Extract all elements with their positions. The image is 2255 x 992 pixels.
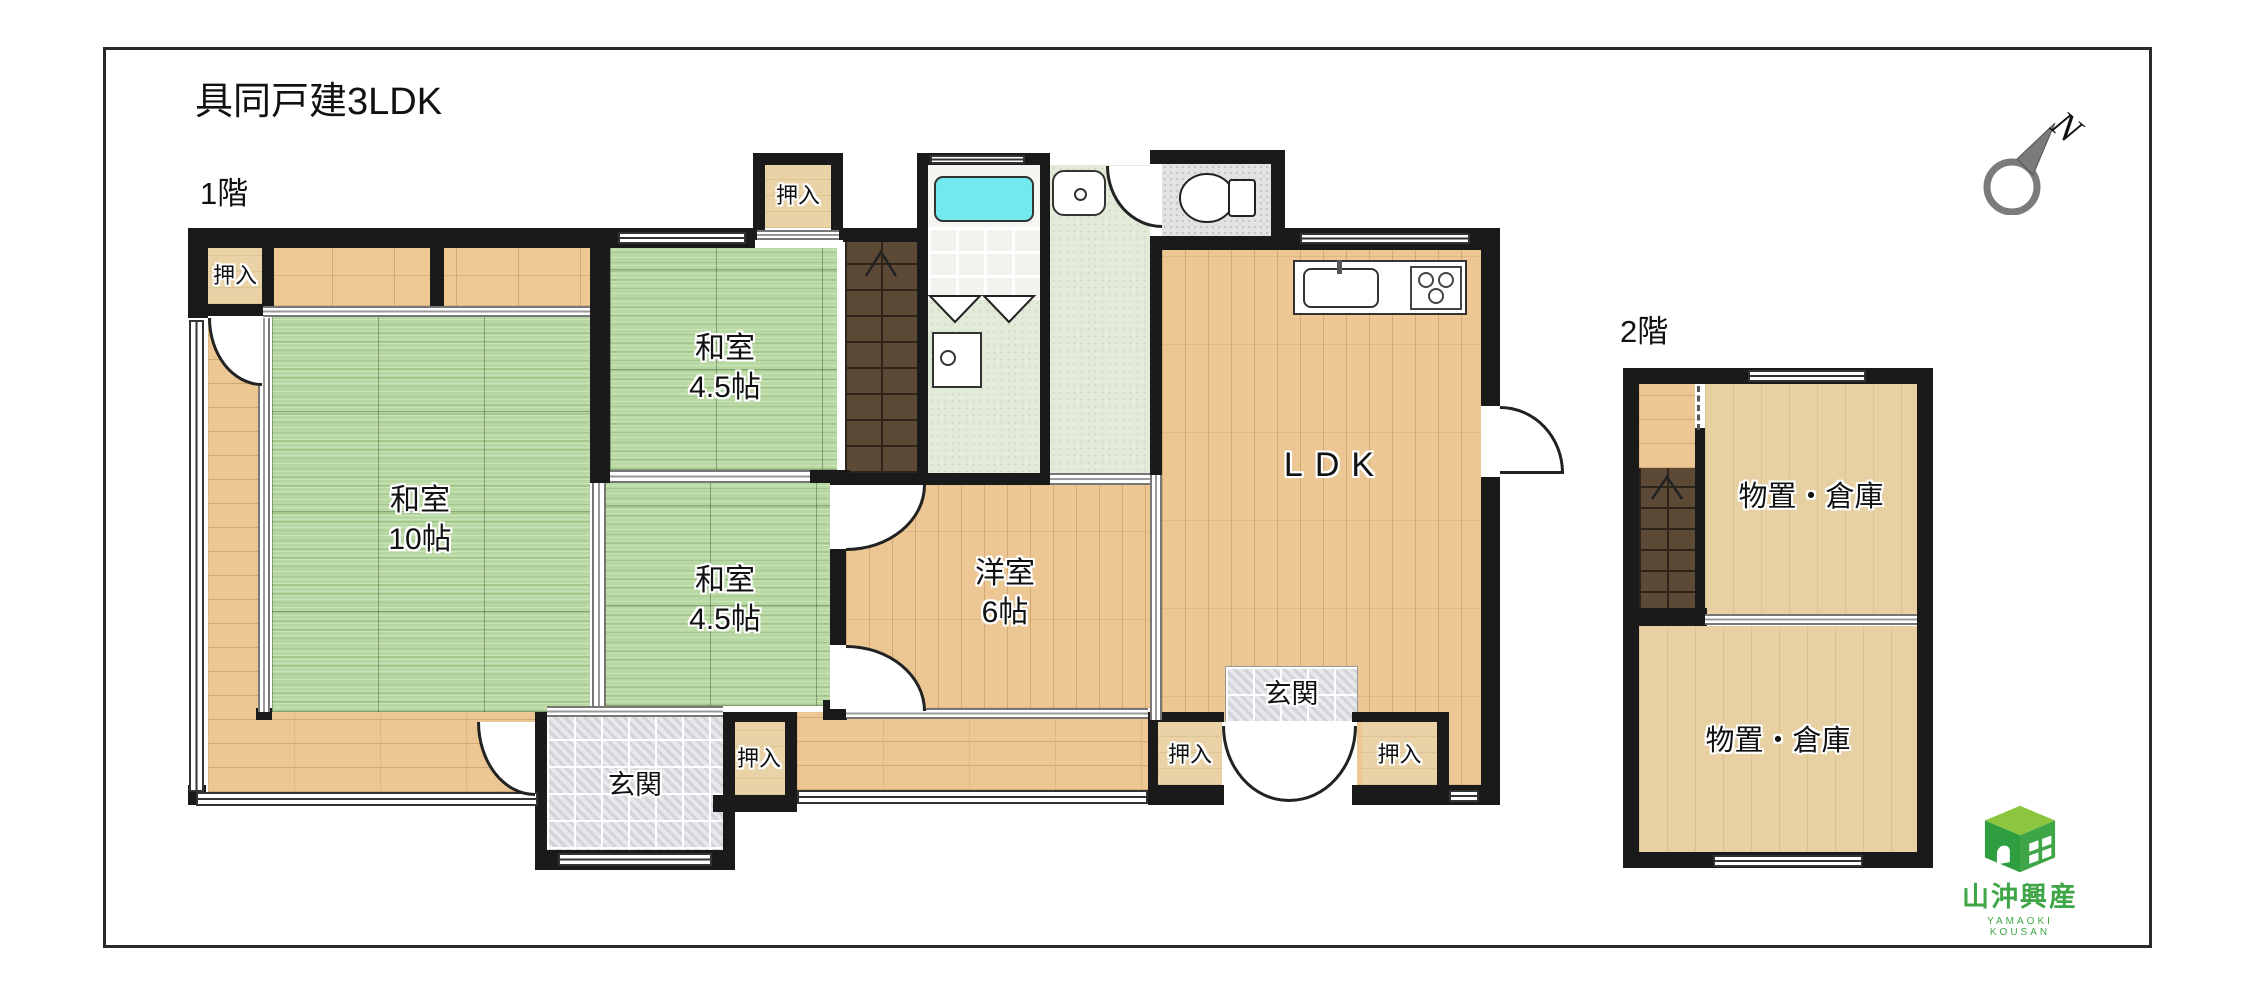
wall [1150, 150, 1285, 164]
folding-door-icon [920, 294, 1044, 326]
wall [1352, 712, 1449, 722]
compass-icon: N [1965, 95, 2095, 215]
wall [753, 153, 843, 165]
wall [1695, 428, 1705, 620]
kitchen-sink [1303, 268, 1379, 308]
wall [1481, 475, 1500, 805]
window [1713, 855, 1863, 867]
company-name: 山沖興産 [1955, 875, 2085, 914]
wall [590, 228, 610, 483]
stairs-up-arrow-icon [1645, 472, 1689, 504]
room-ldk-label: LDK [1265, 440, 1405, 490]
washing-machine-drum [940, 350, 956, 366]
room-washitsu45-north-label: 和室 4.5帖 [640, 320, 810, 415]
wall [1150, 236, 1285, 250]
window [797, 790, 1148, 804]
sliding-door [1050, 473, 1150, 485]
door-gap [830, 485, 846, 549]
stairs-up-arrow-icon [858, 246, 904, 282]
wall [713, 795, 797, 812]
washing-machine [932, 332, 982, 388]
wall [430, 228, 444, 312]
window [930, 155, 1025, 164]
washbasin [1052, 170, 1106, 216]
wall [831, 153, 843, 240]
wall [1917, 368, 1933, 868]
stove-icon [1410, 266, 1462, 310]
door-gap [830, 645, 846, 709]
page-title: 具同戸建3LDK [195, 70, 442, 125]
wall [723, 712, 735, 870]
storage-upper-label: 物置・倉庫 [1705, 478, 1917, 518]
wall [1481, 228, 1500, 410]
bathtub [934, 176, 1034, 222]
company-name-romaji: YAMAOKI KOUSAN [1955, 916, 2085, 938]
wall [837, 473, 1050, 485]
sliding-door [1150, 475, 1162, 720]
floor2-label: 2階 [1620, 306, 1668, 351]
closet-label: 押入 [765, 178, 831, 214]
room-washitsu45-center-label: 和室 4.5帖 [640, 552, 810, 647]
sliding-door [757, 230, 839, 240]
storage-lower-label: 物置・倉庫 [1639, 722, 1917, 762]
door-gap [1481, 406, 1500, 477]
sliding-door [610, 470, 810, 483]
closet-label: 押入 [1362, 740, 1437, 770]
window [618, 232, 746, 244]
entrance-sliding-door [558, 853, 712, 866]
sliding-door [263, 306, 590, 317]
wall [535, 712, 547, 870]
landing-2f-floor [1639, 384, 1695, 468]
closet-label: 押入 [208, 254, 262, 298]
wall [753, 153, 765, 240]
washbasin-drain [1074, 188, 1087, 201]
wall [1148, 785, 1224, 805]
door-leaf [1500, 471, 1564, 474]
logo-cube-icon [1975, 803, 2065, 875]
wall [1623, 608, 1707, 626]
closet-label: 押入 [729, 744, 789, 774]
bathroom-tile-floor [928, 227, 1040, 300]
kitchen-faucet [1337, 260, 1342, 274]
wall [1150, 240, 1162, 475]
genkan-ldk-label: 玄関 [1225, 678, 1358, 712]
window [189, 320, 204, 792]
sliding-door [1705, 614, 1917, 625]
closet-dashed-door [1697, 386, 1701, 430]
sliding-door [547, 706, 723, 717]
window [1300, 233, 1470, 244]
window [1449, 790, 1479, 802]
window [196, 792, 538, 806]
floor1-label: 1階 [200, 168, 248, 213]
wall [810, 470, 850, 483]
corridor-south-east-floor [797, 712, 1148, 790]
wall [262, 228, 274, 316]
floorplan-canvas: 具同戸建3LDK 1階 2階 N [0, 0, 2255, 992]
wall [843, 228, 921, 242]
room-yoshitsu6-label: 洋室 6帖 [930, 545, 1080, 640]
genkan-main-label: 玄関 [555, 768, 715, 804]
compass-north-label: N [2042, 102, 2091, 153]
toilet-icon [1175, 168, 1267, 230]
sliding-door [592, 483, 606, 712]
company-logo: 山沖興産 YAMAOKI KOUSAN [1955, 803, 2085, 938]
window [1748, 370, 1866, 382]
room-washitsu10-label: 和室 10帖 [320, 472, 520, 567]
closet-label: 押入 [1158, 740, 1222, 770]
